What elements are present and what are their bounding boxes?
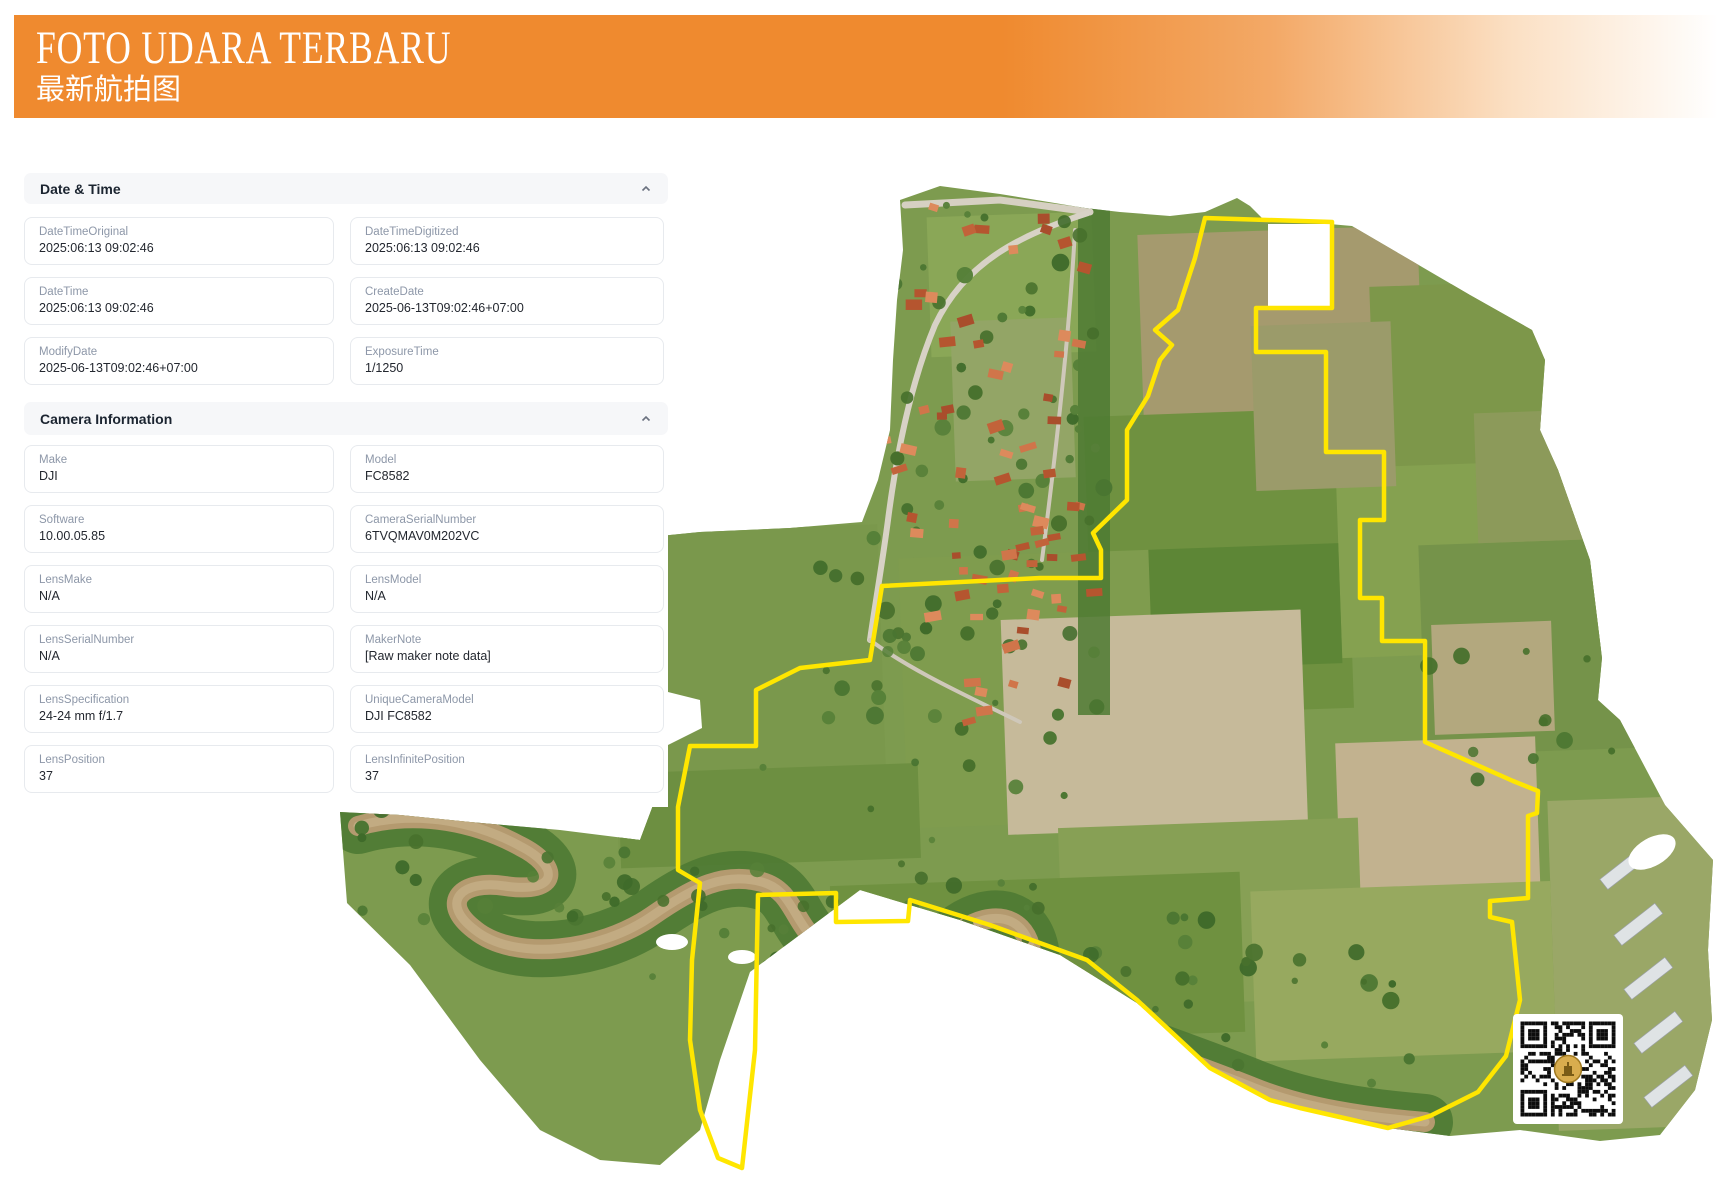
field-value: 24-24 mm f/1.7 — [39, 708, 319, 725]
metadata-card: MakerNote [Raw maker note data] — [350, 625, 664, 673]
section-title: Date & Time — [40, 181, 121, 197]
page-title: FOTO UDARA TERBARU — [36, 25, 1314, 72]
metadata-card: DateTime 2025:06:13 09:02:46 — [24, 277, 334, 325]
field-label: LensMake — [39, 573, 319, 588]
field-label: LensModel — [365, 573, 649, 588]
field-value: 2025:06:13 09:02:46 — [365, 240, 649, 257]
field-value: 2025:06:13 09:02:46 — [39, 240, 319, 257]
metadata-card: CreateDate 2025-06-13T09:02:46+07:00 — [350, 277, 664, 325]
qr-code — [1513, 1014, 1623, 1124]
field-value: N/A — [365, 588, 649, 605]
field-label: ModifyDate — [39, 345, 319, 360]
field-value: 2025:06:13 09:02:46 — [39, 300, 319, 317]
metadata-card: LensPosition 37 — [24, 745, 334, 793]
metadata-card: LensSpecification 24-24 mm f/1.7 — [24, 685, 334, 733]
metadata-card: DateTimeDigitized 2025:06:13 09:02:46 — [350, 217, 664, 265]
field-label: LensSerialNumber — [39, 633, 319, 648]
field-value: 10.00.05.85 — [39, 528, 319, 545]
chevron-up-icon[interactable] — [640, 413, 652, 425]
field-label: Model — [365, 453, 649, 468]
metadata-card: Make DJI — [24, 445, 334, 493]
date-time-cards: DateTimeOriginal 2025:06:13 09:02:46 Dat… — [24, 217, 668, 385]
field-value: [Raw maker note data] — [365, 648, 649, 665]
metadata-panel: Date & Time DateTimeOriginal 2025:06:13 … — [24, 166, 668, 807]
field-label: LensInfinitePosition — [365, 753, 649, 768]
metadata-card: CameraSerialNumber 6TVQMAV0M202VC — [350, 505, 664, 553]
metadata-card: LensModel N/A — [350, 565, 664, 613]
section-header-date-time[interactable]: Date & Time — [24, 173, 668, 204]
field-label: LensSpecification — [39, 693, 319, 708]
metadata-card: LensMake N/A — [24, 565, 334, 613]
field-value: 37 — [39, 768, 319, 785]
field-value: 37 — [365, 768, 649, 785]
metadata-card: Model FC8582 — [350, 445, 664, 493]
metadata-card: Software 10.00.05.85 — [24, 505, 334, 553]
field-label: DateTimeOriginal — [39, 225, 319, 240]
field-value: 2025-06-13T09:02:46+07:00 — [39, 360, 319, 377]
field-value: N/A — [39, 588, 319, 605]
chevron-up-icon[interactable] — [640, 183, 652, 195]
field-value: 1/1250 — [365, 360, 649, 377]
metadata-card: LensSerialNumber N/A — [24, 625, 334, 673]
section-header-camera-information[interactable]: Camera Information — [24, 402, 668, 435]
section-title: Camera Information — [40, 411, 172, 427]
field-label: UniqueCameraModel — [365, 693, 649, 708]
field-value: FC8582 — [365, 468, 649, 485]
field-label: CameraSerialNumber — [365, 513, 649, 528]
page-subtitle: 最新航拍图 — [36, 73, 1718, 107]
metadata-card: ExposureTime 1/1250 — [350, 337, 664, 385]
field-value: 2025-06-13T09:02:46+07:00 — [365, 300, 649, 317]
field-value: DJI FC8582 — [365, 708, 649, 725]
metadata-card: DateTimeOriginal 2025:06:13 09:02:46 — [24, 217, 334, 265]
metadata-card: UniqueCameraModel DJI FC8582 — [350, 685, 664, 733]
field-value: N/A — [39, 648, 319, 665]
field-label: Software — [39, 513, 319, 528]
field-value: DJI — [39, 468, 319, 485]
camera-information-cards: Make DJI Model FC8582 Software 10.00.05.… — [24, 445, 668, 793]
field-value: 6TVQMAV0M202VC — [365, 528, 649, 545]
field-label: MakerNote — [365, 633, 649, 648]
treeline — [1078, 205, 1110, 715]
field-label: Make — [39, 453, 319, 468]
field-label: DateTimeDigitized — [365, 225, 649, 240]
header-banner: FOTO UDARA TERBARU 最新航拍图 — [14, 15, 1718, 118]
metadata-card: ModifyDate 2025-06-13T09:02:46+07:00 — [24, 337, 334, 385]
field-label: ExposureTime — [365, 345, 649, 360]
field-label: DateTime — [39, 285, 319, 300]
page: FOTO UDARA TERBARU 最新航拍图 — [0, 0, 1718, 1174]
metadata-card: LensInfinitePosition 37 — [350, 745, 664, 793]
field-label: CreateDate — [365, 285, 649, 300]
field-label: LensPosition — [39, 753, 319, 768]
